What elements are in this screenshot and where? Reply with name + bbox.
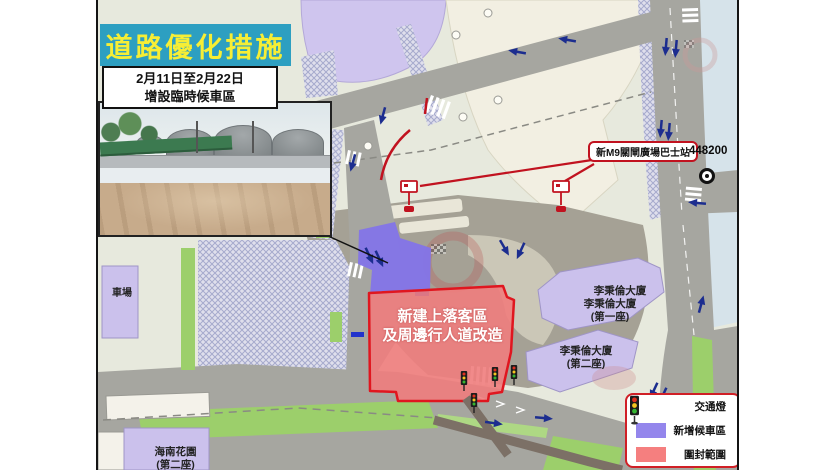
stop-code-label: 448200 [689, 145, 727, 157]
lamp-post [196, 121, 198, 153]
bldg1-line3: (第一座) [550, 311, 670, 324]
bldg2-line2: (第二座) [536, 358, 636, 371]
closure-line1: 新建上落客區 [360, 308, 525, 327]
legend-row-closure-area: 圍封範圍 [636, 447, 732, 462]
dirt-ground [100, 183, 330, 235]
bldg2-line1: 李秉倫大廈 [536, 345, 636, 358]
lamp-post [252, 121, 254, 153]
date-note: 2月11日至2月22日 增設臨時候車區 [102, 66, 278, 109]
building-label-block2: 李秉倫大廈 (第二座) [536, 345, 636, 371]
building-label-carpark: 車場 [103, 288, 141, 300]
target-marker-icon [701, 170, 714, 183]
carpark-line1: 車場 [103, 288, 141, 300]
garden-line1: 海南花園 [138, 446, 213, 459]
building-label-garden: 海南花園 (第二座) [138, 446, 213, 470]
closure-area-swatch [636, 447, 666, 462]
slide: 道路優化措施 2月11日至2月22日 增設臨時候車區 新M9關閘廣場巴士站 新建… [0, 0, 840, 470]
legend-waiting-area-label: 新增候車區 [674, 423, 727, 438]
dome-building [272, 129, 324, 157]
legend-row-waiting-area: 新增候車區 [636, 423, 732, 438]
legend-row-traffic-light: 交通燈 [636, 399, 732, 414]
traffic-light-icon [627, 395, 642, 425]
site-photo [98, 101, 332, 237]
legend: 交通燈 新增候車區 圍封範圍 [625, 393, 739, 468]
bldg1-line1: 李秉倫大廈 [560, 285, 680, 298]
closure-line2: 及周邊行人道改造 [360, 327, 525, 346]
bldg1-line2: 李秉倫大廈 [550, 298, 670, 311]
closure-zone-label: 新建上落客區 及周邊行人道改造 [360, 308, 525, 346]
date-line1: 2月11日至2月22日 [104, 70, 276, 88]
legend-traffic-light-label: 交通燈 [695, 399, 727, 414]
building-label-block1: 李秉倫大廈 李秉倫大廈 (第一座) [550, 285, 670, 323]
construction-barriers [100, 165, 330, 185]
legend-closure-area-label: 圍封範圍 [684, 447, 726, 462]
garden-line2: (第二座) [138, 459, 213, 470]
bus-station-label: 新M9關閘廣場巴士站 [588, 141, 698, 162]
page-title: 道路優化措施 [100, 24, 291, 66]
map-canvas: 道路優化措施 2月11日至2月22日 增設臨時候車區 新M9關閘廣場巴士站 新建… [96, 0, 739, 470]
date-line2: 增設臨時候車區 [104, 88, 276, 106]
waiting-area-swatch [636, 423, 666, 438]
